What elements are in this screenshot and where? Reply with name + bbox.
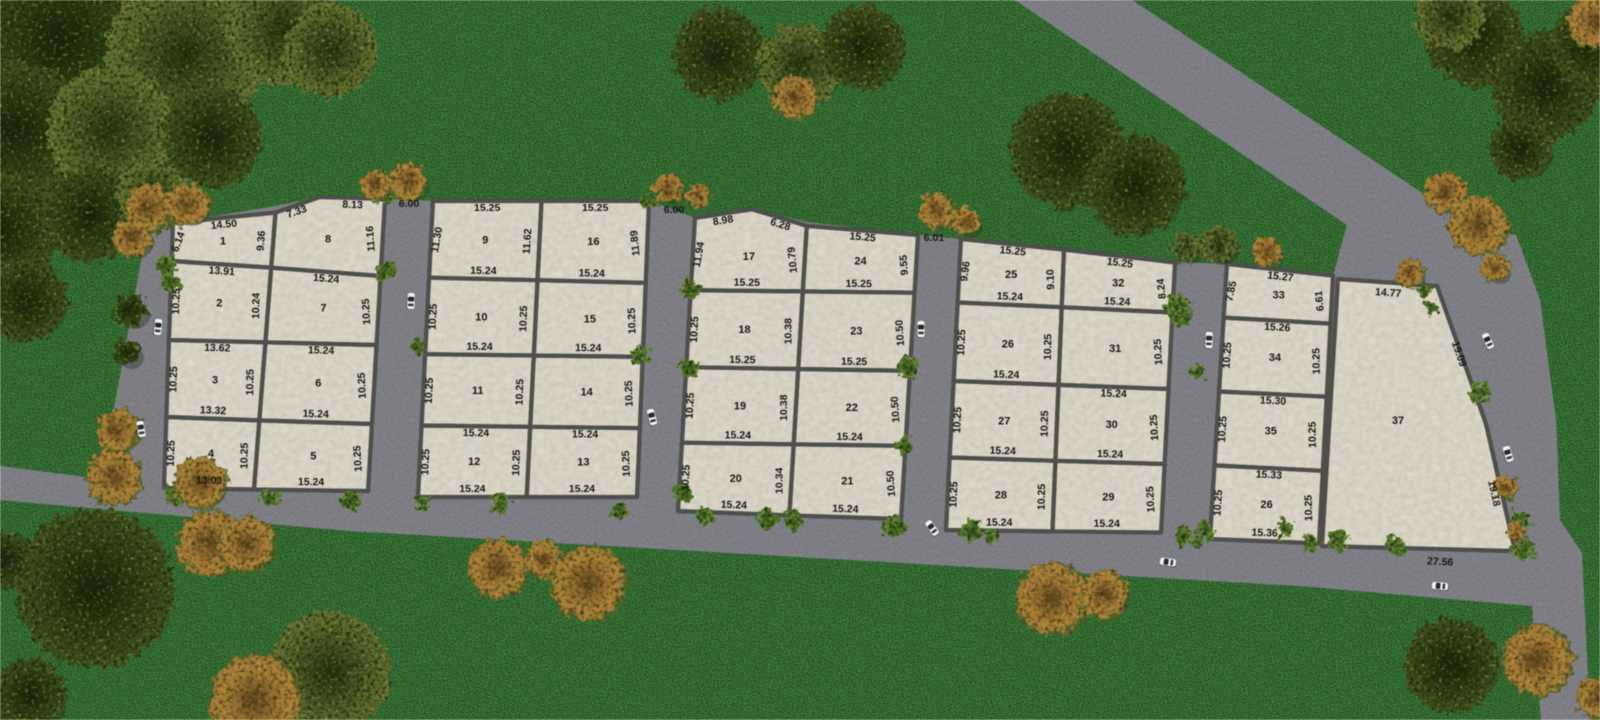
svg-text:10.50: 10.50 — [893, 319, 907, 346]
svg-text:21: 21 — [841, 476, 853, 488]
svg-text:12: 12 — [468, 456, 480, 468]
svg-text:11: 11 — [472, 385, 484, 397]
svg-text:10.25: 10.25 — [688, 316, 701, 343]
svg-text:15.24: 15.24 — [298, 476, 325, 488]
svg-text:7: 7 — [320, 302, 326, 314]
svg-text:15.24: 15.24 — [569, 483, 595, 495]
svg-text:16: 16 — [587, 236, 599, 248]
svg-text:15.24: 15.24 — [1104, 295, 1131, 308]
svg-text:15.25: 15.25 — [841, 356, 868, 368]
svg-text:10.25: 10.25 — [167, 366, 180, 393]
svg-text:15.25: 15.25 — [582, 202, 608, 214]
svg-text:15.24: 15.24 — [1094, 518, 1121, 530]
svg-text:10.34: 10.34 — [774, 468, 786, 494]
svg-text:9.36: 9.36 — [255, 230, 268, 251]
svg-text:10.25: 10.25 — [623, 380, 636, 407]
svg-text:10.25: 10.25 — [244, 369, 256, 396]
svg-text:32: 32 — [1112, 278, 1124, 290]
svg-text:10.25: 10.25 — [620, 450, 633, 477]
svg-text:3: 3 — [212, 374, 218, 386]
svg-text:15.24: 15.24 — [302, 408, 329, 421]
svg-text:4: 4 — [208, 448, 215, 460]
svg-text:6.01: 6.01 — [924, 232, 945, 244]
svg-text:15.24: 15.24 — [1097, 448, 1124, 461]
svg-text:6.00: 6.00 — [664, 204, 685, 216]
svg-text:31: 31 — [1109, 343, 1121, 355]
svg-text:15.24: 15.24 — [832, 503, 859, 516]
svg-text:1: 1 — [220, 236, 226, 248]
svg-text:25: 25 — [1005, 269, 1017, 281]
svg-text:9.55: 9.55 — [898, 254, 911, 275]
svg-text:15.24: 15.24 — [993, 368, 1020, 381]
svg-text:18: 18 — [738, 324, 750, 336]
svg-text:9: 9 — [482, 235, 488, 247]
svg-text:15.24: 15.24 — [720, 499, 747, 512]
svg-text:23: 23 — [850, 326, 862, 338]
svg-text:10.25: 10.25 — [238, 442, 250, 469]
svg-text:10.25: 10.25 — [1303, 495, 1315, 522]
svg-text:33: 33 — [1272, 290, 1284, 302]
svg-text:10.25: 10.25 — [1148, 414, 1161, 441]
svg-text:28: 28 — [995, 489, 1007, 501]
svg-text:15.25: 15.25 — [846, 278, 873, 290]
svg-text:10.25: 10.25 — [1152, 338, 1165, 365]
svg-text:10.38: 10.38 — [783, 318, 795, 344]
svg-text:10.25: 10.25 — [427, 303, 440, 330]
svg-text:15.24: 15.24 — [996, 290, 1023, 303]
svg-text:15.24: 15.24 — [836, 431, 863, 443]
svg-text:15.24: 15.24 — [313, 272, 340, 286]
svg-text:15.24: 15.24 — [989, 445, 1016, 458]
svg-text:5: 5 — [310, 451, 316, 463]
svg-text:9.10: 9.10 — [1044, 269, 1057, 290]
svg-text:37: 37 — [1392, 415, 1404, 427]
svg-text:10.25: 10.25 — [351, 445, 364, 472]
svg-text:8.24: 8.24 — [1155, 278, 1169, 300]
svg-text:15.24: 15.24 — [470, 265, 497, 278]
svg-text:20: 20 — [730, 473, 742, 485]
svg-text:10.25: 10.25 — [947, 481, 960, 508]
svg-text:30: 30 — [1106, 419, 1118, 431]
svg-text:15: 15 — [584, 313, 596, 325]
svg-text:13: 13 — [577, 457, 589, 469]
svg-text:6.61: 6.61 — [1313, 290, 1327, 312]
svg-text:15.24: 15.24 — [463, 427, 490, 439]
svg-text:11.62: 11.62 — [521, 228, 535, 255]
svg-text:14.77: 14.77 — [1375, 286, 1402, 300]
svg-text:10.25: 10.25 — [510, 449, 523, 476]
svg-text:17: 17 — [743, 251, 755, 263]
svg-text:15.24: 15.24 — [459, 483, 485, 495]
svg-text:13.32: 13.32 — [200, 404, 227, 417]
svg-text:27.56: 27.56 — [1427, 555, 1454, 568]
svg-text:10.25: 10.25 — [955, 329, 968, 356]
svg-text:13.03: 13.03 — [196, 474, 223, 486]
svg-text:6: 6 — [315, 377, 321, 389]
svg-text:10.25: 10.25 — [356, 372, 369, 399]
svg-text:26: 26 — [1260, 499, 1272, 511]
svg-text:10.38: 10.38 — [778, 394, 790, 420]
svg-text:10.25: 10.25 — [626, 308, 639, 335]
svg-text:10.25: 10.25 — [1221, 342, 1235, 369]
svg-text:15.24: 15.24 — [466, 341, 493, 353]
svg-text:15.24: 15.24 — [572, 428, 599, 440]
svg-text:10.25: 10.25 — [517, 305, 530, 332]
svg-text:15.25: 15.25 — [734, 277, 761, 289]
svg-text:34: 34 — [1269, 352, 1282, 364]
svg-text:19: 19 — [734, 400, 746, 412]
svg-text:13.62: 13.62 — [204, 342, 231, 355]
svg-text:10.25: 10.25 — [1036, 484, 1048, 511]
svg-text:26: 26 — [1002, 338, 1014, 350]
svg-text:15.24: 15.24 — [578, 267, 605, 280]
svg-text:10.25: 10.25 — [1144, 486, 1157, 513]
svg-text:10.25: 10.25 — [951, 406, 964, 433]
svg-text:15.26: 15.26 — [1264, 321, 1291, 334]
svg-text:10.24: 10.24 — [250, 293, 262, 320]
svg-text:10.25: 10.25 — [165, 440, 178, 467]
svg-text:10.25: 10.25 — [423, 377, 436, 404]
svg-text:10.25: 10.25 — [1310, 348, 1322, 375]
svg-text:10.25: 10.25 — [1211, 489, 1225, 516]
svg-text:29: 29 — [1102, 492, 1114, 504]
svg-text:22: 22 — [846, 402, 858, 414]
svg-text:15.24: 15.24 — [986, 517, 1013, 529]
svg-text:10.25: 10.25 — [514, 379, 527, 406]
svg-text:10.25: 10.25 — [360, 298, 373, 325]
svg-text:10.50: 10.50 — [889, 396, 903, 423]
svg-text:10: 10 — [475, 311, 487, 323]
svg-text:10.25: 10.25 — [684, 392, 697, 419]
svg-text:10.25: 10.25 — [1039, 410, 1051, 437]
svg-text:24: 24 — [854, 256, 867, 268]
svg-text:2: 2 — [216, 297, 222, 309]
svg-text:15.30: 15.30 — [1260, 394, 1287, 407]
svg-text:15.36: 15.36 — [1251, 527, 1278, 540]
svg-text:15.24: 15.24 — [308, 344, 335, 357]
svg-text:27: 27 — [998, 416, 1010, 428]
svg-text:10.25: 10.25 — [1042, 334, 1054, 361]
svg-text:15.25: 15.25 — [729, 354, 756, 366]
svg-text:10.25: 10.25 — [1306, 421, 1318, 448]
svg-text:10.25: 10.25 — [679, 464, 692, 491]
svg-text:10.25: 10.25 — [419, 448, 432, 475]
svg-text:10.25: 10.25 — [170, 288, 183, 315]
svg-text:14: 14 — [580, 386, 593, 398]
svg-text:15.25: 15.25 — [849, 230, 876, 244]
svg-text:10.50: 10.50 — [884, 470, 898, 497]
svg-text:10.25: 10.25 — [1216, 416, 1230, 443]
svg-text:15.33: 15.33 — [1255, 468, 1282, 481]
svg-text:8.13: 8.13 — [342, 199, 363, 212]
svg-text:8: 8 — [325, 233, 331, 245]
svg-text:15.25: 15.25 — [474, 202, 500, 214]
svg-text:15.24: 15.24 — [725, 429, 752, 441]
svg-text:15.24: 15.24 — [1100, 387, 1127, 400]
svg-text:11.16: 11.16 — [364, 225, 378, 252]
svg-text:6.00: 6.00 — [399, 198, 420, 210]
svg-text:15.24: 15.24 — [575, 342, 602, 354]
svg-text:13.91: 13.91 — [208, 265, 235, 279]
svg-text:35: 35 — [1265, 426, 1277, 438]
